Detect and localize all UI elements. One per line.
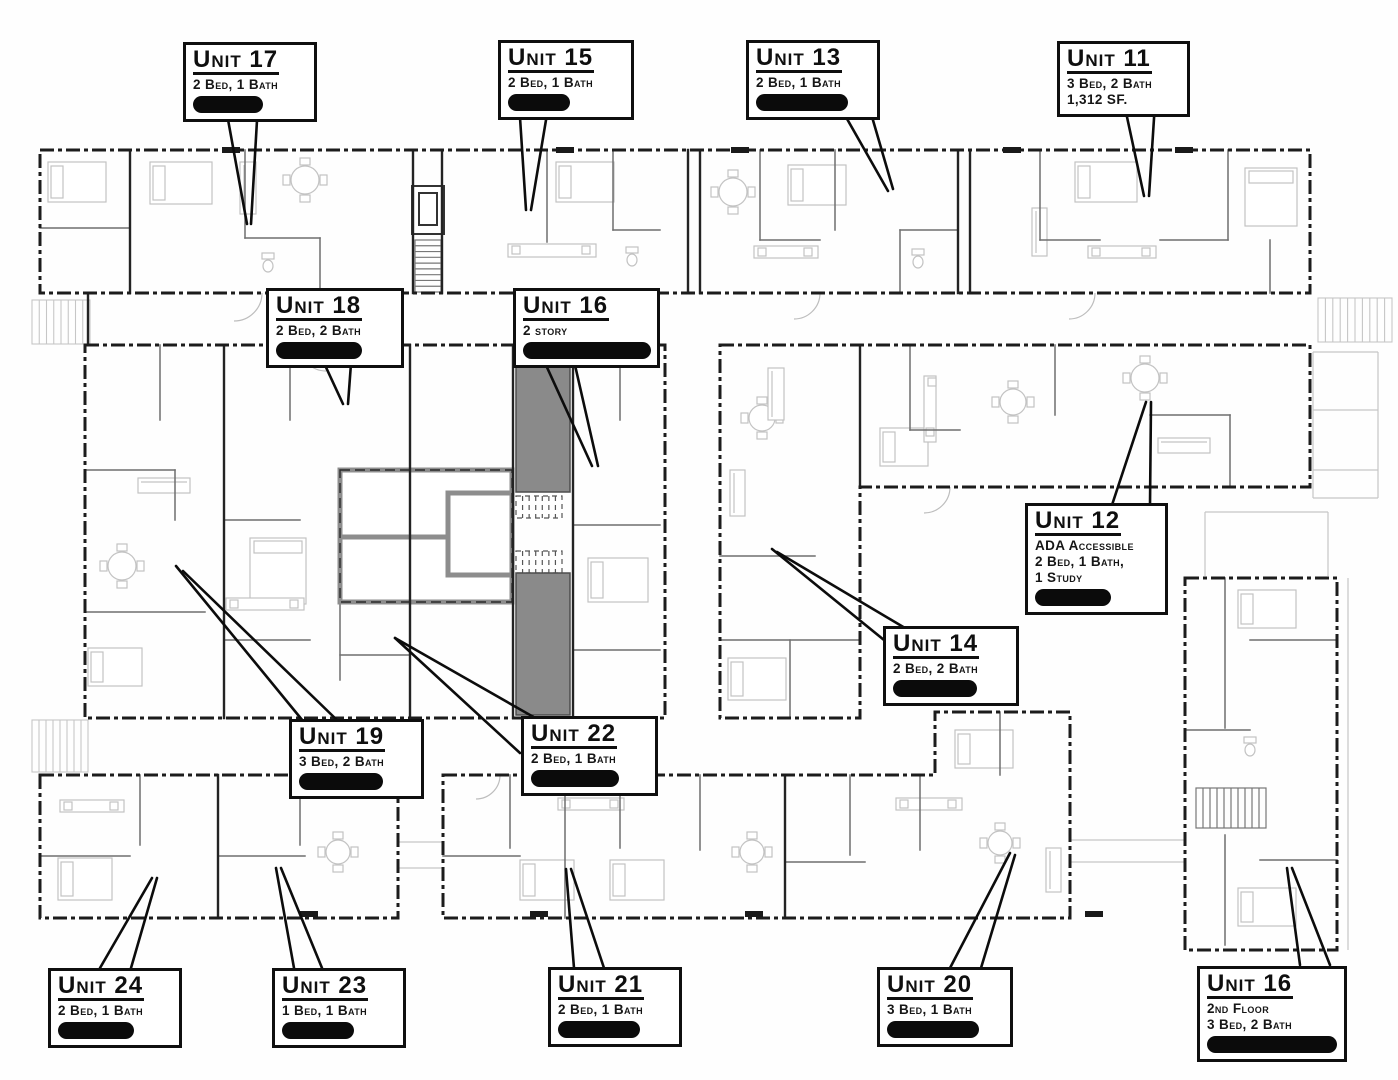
unit-18-detail: 2 Bed, 2 Bath (276, 323, 394, 339)
unit-20-title: Unit 20 (887, 973, 973, 1000)
unit-23-title: Unit 23 (282, 974, 368, 1001)
unit-20-detail: 3 Bed, 1 Bath (887, 1002, 1003, 1018)
unit-17-callout: Unit 17 2 Bed, 1 Bath (183, 42, 317, 122)
unit-16-2nd-floor: 2nd Floor (1207, 1001, 1337, 1017)
unit-23-redacted-price (282, 1022, 354, 1039)
unit-15-callout: Unit 15 2 Bed, 1 Bath (498, 40, 634, 120)
unit-16-main-redacted-price (523, 342, 651, 359)
unit-21-redacted-price (558, 1021, 640, 1038)
unit-16-2nd-title: Unit 16 (1207, 972, 1293, 999)
unit-14-callout: Unit 14 2 Bed, 2 Bath (883, 626, 1019, 706)
unit-15-detail: 2 Bed, 1 Bath (508, 75, 624, 91)
floor-plan-drawing (0, 0, 1398, 1080)
unit-22-title: Unit 22 (531, 722, 617, 749)
unit-12-detail: 2 Bed, 1 Bath, (1035, 554, 1158, 570)
unit-12-study: 1 Study (1035, 570, 1158, 586)
unit-24-redacted-price (58, 1022, 134, 1039)
unit-21-title: Unit 21 (558, 973, 644, 1000)
unit-16-2nd-callout: Unit 16 2nd Floor 3 Bed, 2 Bath (1197, 966, 1347, 1062)
unit-14-title: Unit 14 (893, 632, 979, 659)
unit-11-title: Unit 11 (1067, 47, 1152, 74)
unit-12-title: Unit 12 (1035, 509, 1121, 536)
unit-19-title: Unit 19 (299, 725, 385, 752)
unit-12-redacted-price (1035, 589, 1111, 606)
unit-13-redacted-price (756, 94, 848, 111)
unit-16-main-title: Unit 16 (523, 294, 609, 321)
unit-13-title: Unit 13 (756, 46, 842, 73)
unit-21-callout: Unit 21 2 Bed, 1 Bath (548, 967, 682, 1047)
unit-11-area: 1,312 SF. (1067, 92, 1180, 108)
unit-20-redacted-price (887, 1021, 979, 1038)
unit-17-detail: 2 Bed, 1 Bath (193, 77, 307, 93)
unit-21-detail: 2 Bed, 1 Bath (558, 1002, 672, 1018)
unit-16-main-callout: Unit 16 2 story (513, 288, 660, 368)
unit-16-main-detail: 2 story (523, 323, 650, 339)
floor-plan-page: Unit 17 2 Bed, 1 Bath Unit 15 2 Bed, 1 B… (0, 0, 1398, 1080)
unit-20-callout: Unit 20 3 Bed, 1 Bath (877, 967, 1013, 1047)
unit-11-callout: Unit 11 3 Bed, 2 Bath 1,312 SF. (1057, 41, 1190, 117)
unit-13-detail: 2 Bed, 1 Bath (756, 75, 870, 91)
unit-17-title: Unit 17 (193, 48, 279, 75)
unit-16-2nd-detail: 3 Bed, 2 Bath (1207, 1017, 1337, 1033)
unit-12-callout: Unit 12 ADA Accessible 2 Bed, 1 Bath, 1 … (1025, 503, 1168, 615)
unit-24-title: Unit 24 (58, 974, 144, 1001)
unit-23-callout: Unit 23 1 Bed, 1 Bath (272, 968, 406, 1048)
unit-18-callout: Unit 18 2 Bed, 2 Bath (266, 288, 404, 368)
unit-24-detail: 2 Bed, 1 Bath (58, 1003, 172, 1019)
unit-18-redacted-price (276, 342, 362, 359)
unit-16-2nd-redacted-price (1207, 1036, 1337, 1053)
unit-23-detail: 1 Bed, 1 Bath (282, 1003, 396, 1019)
unit-22-detail: 2 Bed, 1 Bath (531, 751, 648, 767)
unit-13-callout: Unit 13 2 Bed, 1 Bath (746, 40, 880, 120)
unit-19-redacted-price (299, 773, 383, 790)
unit-14-redacted-price (893, 680, 977, 697)
unit-22-callout: Unit 22 2 Bed, 1 Bath (521, 716, 658, 796)
unit-11-detail: 3 Bed, 2 Bath (1067, 76, 1180, 92)
unit-22-redacted-price (531, 770, 619, 787)
unit-17-redacted-price (193, 96, 263, 113)
unit-19-detail: 3 Bed, 2 Bath (299, 754, 414, 770)
unit-15-title: Unit 15 (508, 46, 594, 73)
unit-24-callout: Unit 24 2 Bed, 1 Bath (48, 968, 182, 1048)
unit-18-title: Unit 18 (276, 294, 362, 321)
unit-15-redacted-price (508, 94, 570, 111)
unit-14-detail: 2 Bed, 2 Bath (893, 661, 1009, 677)
unit-19-callout: Unit 19 3 Bed, 2 Bath (289, 719, 424, 799)
unit-12-ada: ADA Accessible (1035, 538, 1158, 554)
